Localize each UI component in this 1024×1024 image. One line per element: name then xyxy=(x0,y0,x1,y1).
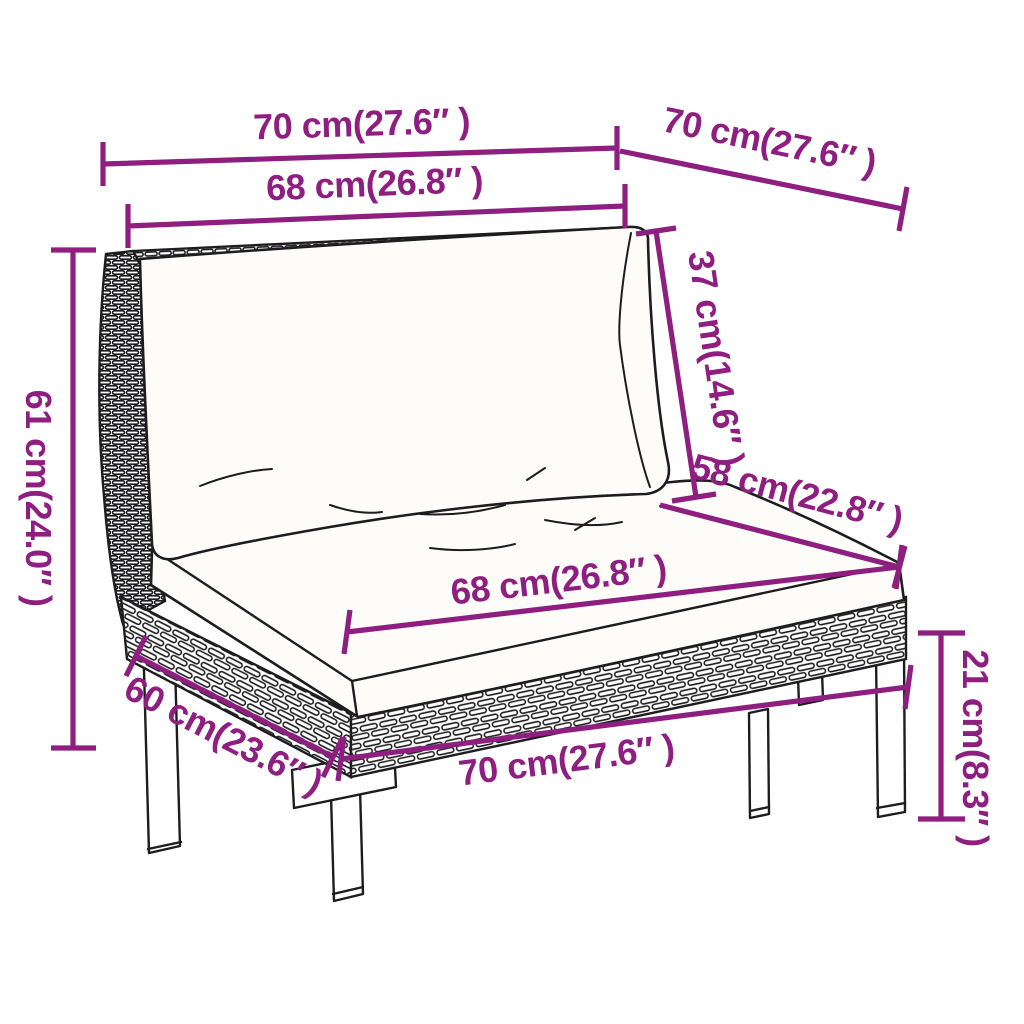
sofa-dimension-diagram: 70 cm(27.6″ ) 70 cm(27.6″ ) 68 cm(26.8″ … xyxy=(0,0,1024,1024)
leg-back-right xyxy=(749,709,769,818)
dimension-leg-height: 21 cm(8.3″ ) xyxy=(918,633,996,847)
sofa-line-art xyxy=(99,227,906,901)
dimension-label-top-depth: 70 cm(27.6″ ) xyxy=(659,99,880,183)
dimension-label-total-height: 61 cm(24.0″ ) xyxy=(18,390,59,607)
dimension-total-height: 61 cm(24.0″ ) xyxy=(18,250,96,748)
dimension-diagram-canvas: 70 cm(27.6″ ) 70 cm(27.6″ ) 68 cm(26.8″ … xyxy=(0,0,1024,1024)
dimension-label-back-width: 68 cm(26.8″ ) xyxy=(265,159,483,209)
dimension-label-top-width: 70 cm(27.6″ ) xyxy=(253,100,471,148)
dimension-label-leg-height: 21 cm(8.3″ ) xyxy=(955,649,996,846)
leg-front-right xyxy=(876,650,905,817)
dimension-top-depth: 70 cm(27.6″ ) xyxy=(620,99,907,231)
dimension-label-back-cushion-height: 37 cm(14.6″ ) xyxy=(680,248,753,469)
